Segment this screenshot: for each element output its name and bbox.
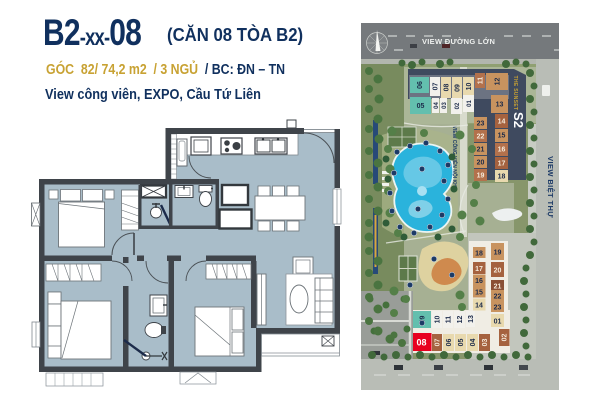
svg-text:17: 17 [475, 266, 483, 273]
svg-text:THE SUNSET: THE SUNSET [512, 76, 518, 111]
svg-text:12: 12 [457, 316, 464, 324]
svg-text:03: 03 [442, 102, 448, 109]
svg-text:17: 17 [498, 161, 506, 168]
svg-text:14: 14 [498, 119, 506, 126]
svg-text:20: 20 [494, 268, 502, 275]
svg-text:10: 10 [466, 83, 473, 91]
svg-text:VIEW BIỆT THỰ: VIEW BIỆT THỰ [546, 156, 555, 218]
svg-text:19: 19 [494, 250, 502, 257]
svg-text:16: 16 [475, 278, 483, 285]
svg-text:16: 16 [498, 147, 506, 154]
svg-text:11: 11 [478, 77, 485, 85]
svg-text:03: 03 [482, 339, 489, 347]
svg-text:04: 04 [470, 339, 477, 347]
svg-text:04: 04 [434, 102, 440, 109]
svg-text:21: 21 [477, 147, 485, 154]
svg-text:23: 23 [494, 305, 502, 312]
svg-text:S2: S2 [511, 112, 526, 128]
svg-text:11: 11 [446, 316, 453, 324]
svg-text:07: 07 [435, 339, 442, 347]
svg-text:06: 06 [446, 339, 453, 347]
svg-text:15: 15 [498, 133, 506, 140]
svg-text:01: 01 [467, 100, 473, 107]
svg-text:22: 22 [494, 294, 502, 301]
svg-text:12: 12 [495, 78, 502, 86]
svg-text:21: 21 [494, 284, 502, 291]
svg-text:02: 02 [502, 334, 509, 342]
svg-text:13: 13 [468, 315, 475, 323]
svg-text:VIEW ĐƯỜNG LỚN: VIEW ĐƯỜNG LỚN [422, 37, 495, 46]
svg-text:01: 01 [494, 319, 502, 326]
svg-text:18: 18 [475, 251, 483, 258]
svg-text:07: 07 [433, 83, 440, 91]
svg-text:14: 14 [475, 303, 483, 310]
svg-text:08: 08 [416, 338, 426, 348]
svg-text:05: 05 [417, 103, 425, 110]
svg-text:20: 20 [477, 160, 485, 167]
svg-text:08: 08 [444, 84, 451, 92]
svg-text:10: 10 [435, 316, 442, 324]
svg-text:13: 13 [496, 102, 504, 109]
svg-text:18: 18 [498, 174, 506, 181]
svg-text:02: 02 [455, 102, 461, 109]
svg-text:06: 06 [417, 81, 424, 89]
svg-text:05: 05 [458, 339, 465, 347]
svg-text:15: 15 [475, 290, 483, 297]
svg-text:22: 22 [477, 134, 485, 141]
svg-text:19: 19 [477, 173, 485, 180]
svg-text:09: 09 [455, 84, 462, 92]
svg-text:23: 23 [477, 121, 485, 128]
